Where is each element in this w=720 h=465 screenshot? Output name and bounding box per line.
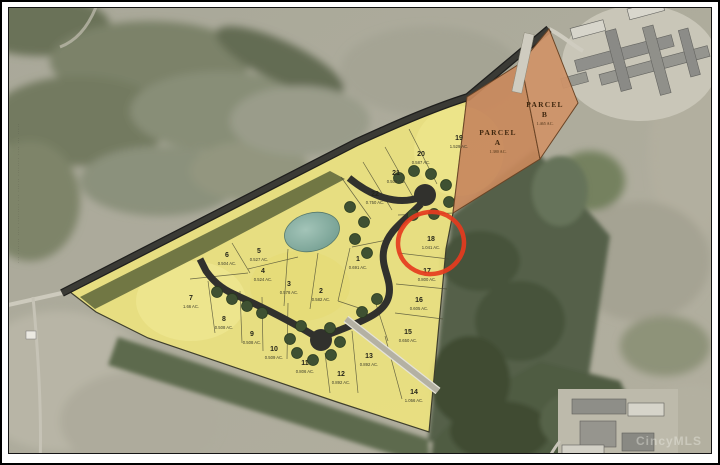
lot-4-number: 4 <box>261 268 265 275</box>
lot-13-acreage: 0.892 AC. <box>360 362 378 367</box>
lot-22-acreage: 0.750 AC. <box>366 200 384 205</box>
parcel-b-label: PARCEL <box>526 100 563 109</box>
left-margin-credit-text: ··· ······· ···· ········· ··· ······ ··… <box>16 123 21 263</box>
lot-10-acreage: 0.509 AC. <box>265 355 283 360</box>
lot-19-acreage: 1.529 AC. <box>450 144 468 149</box>
lot-21-number: 21 <box>392 170 400 177</box>
aerial-site-plan-photo[interactable]: 10.691 AC.20.582 AC.30.578 AC.40.524 AC.… <box>8 7 712 454</box>
lot-4-acreage: 0.524 AC. <box>254 277 272 282</box>
parcel-a-letter: A <box>495 138 502 147</box>
lot-7-number: 7 <box>189 295 193 302</box>
lot-5-acreage: 0.527 AC. <box>250 257 268 262</box>
lot-10-number: 10 <box>270 346 278 353</box>
lot-3-acreage: 0.578 AC. <box>280 290 298 295</box>
lot-1-number: 1 <box>356 256 360 263</box>
lot-14-acreage: 1.056 AC. <box>405 398 423 403</box>
lot-8-acreage: 0.508 AC. <box>215 325 233 330</box>
listing-photo-frame: 10.691 AC.20.582 AC.30.578 AC.40.524 AC.… <box>0 0 720 465</box>
lot-2-acreage: 0.582 AC. <box>312 297 330 302</box>
parcel-b-acreage: 1.465 AC. <box>536 121 553 126</box>
lot-12-acreage: 0.892 AC. <box>332 380 350 385</box>
lot-13-number: 13 <box>365 353 373 360</box>
lot-21-acreage: 0.509 AC. <box>387 179 405 184</box>
lot-16-acreage: 0.605 AC. <box>410 306 428 311</box>
lot-6-number: 6 <box>225 252 229 259</box>
lot-9-number: 9 <box>250 331 254 338</box>
parcel-a-acreage: 1.380 AC. <box>489 149 506 154</box>
lot-1-acreage: 0.691 AC. <box>349 265 367 270</box>
lot-15-acreage: 0.650 AC. <box>399 338 417 343</box>
lot-7-acreage: 1.66 AC. <box>183 304 199 309</box>
lot-19-number: 19 <box>455 135 463 142</box>
lot-20-acreage: 0.587 AC. <box>412 160 430 165</box>
lot-17-acreage: 0.800 AC. <box>418 277 436 282</box>
lot-5-number: 5 <box>257 248 261 255</box>
lot-14-number: 14 <box>410 389 418 396</box>
lot-2-number: 2 <box>319 288 323 295</box>
lot-3-number: 3 <box>287 281 291 288</box>
lot-9-acreage: 0.508 AC. <box>243 340 261 345</box>
lot-18-acreage: 1.041 AC. <box>422 245 440 250</box>
lot-11-acreage: 0.806 AC. <box>296 369 314 374</box>
lot-18-number: 18 <box>427 236 435 243</box>
lot-15-number: 15 <box>404 329 412 336</box>
lot-6-acreage: 0.504 AC. <box>218 261 236 266</box>
lot-8-number: 8 <box>222 316 226 323</box>
parcel-b-letter: B <box>542 110 548 119</box>
lot-12-number: 12 <box>337 371 345 378</box>
site-plan-svg: 10.691 AC.20.582 AC.30.578 AC.40.524 AC.… <box>9 8 711 453</box>
lot-20-number: 20 <box>417 151 425 158</box>
small-house <box>26 331 36 339</box>
parcel-a-label: PARCEL <box>479 128 516 137</box>
lot-22-number: 22 <box>371 191 379 198</box>
lot-11-number: 11 <box>301 360 309 367</box>
photo-mat: 10.691 AC.20.582 AC.30.578 AC.40.524 AC.… <box>2 2 718 463</box>
cul-de-sac-north <box>414 184 436 206</box>
lot-16-number: 16 <box>415 297 423 304</box>
building-complex-south <box>546 389 678 453</box>
